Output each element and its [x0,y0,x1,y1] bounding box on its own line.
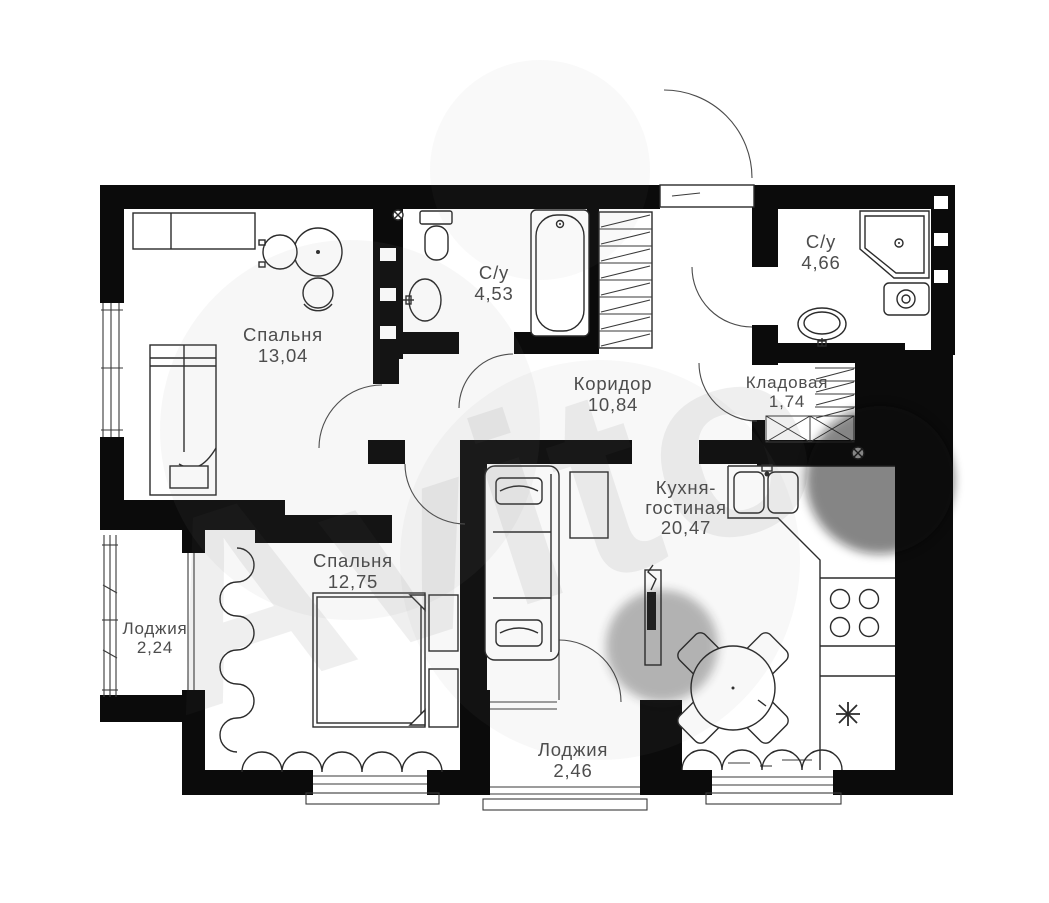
curtain-wave [682,750,842,770]
entrance-door-arc [664,90,752,178]
room-label-loggia1: Лоджия [122,619,187,638]
desk [133,213,255,249]
room-label-storage: Кладовая [746,373,829,392]
wall [752,209,778,267]
sink [798,308,846,346]
wall [752,185,955,209]
stove [820,578,895,646]
room-label-bathroom1: С/у [479,262,509,283]
kitchen-bottom-window [706,760,841,804]
room-area-bedroom2: 12,75 [328,571,378,592]
floorplan-page: Avito Спальня 13,04 С/у 4,53 С/у 4,66 Ко… [0,0,1049,903]
room-label-loggia2: Лоджия [538,739,608,760]
fridge-symbol [820,676,895,726]
room-area-kitchen: 20,47 [661,517,711,538]
entrance-door [660,90,754,207]
floorplan-drawing: Avito Спальня 13,04 С/у 4,53 С/у 4,66 Ко… [0,0,1049,903]
valve-icon [393,210,403,220]
shaft-notch [934,270,948,283]
room-label-corridor: Коридор [574,373,653,394]
room-area-corridor: 10,84 [588,394,638,415]
room-area-loggia1: 2,24 [137,638,173,657]
room-area-storage: 1,74 [769,392,805,411]
wall [833,770,953,795]
bedroom2-bottom-window [306,776,439,804]
room-area-bedroom1: 13,04 [258,345,308,366]
room-label-bathroom2: С/у [806,231,836,252]
curtain-wave [242,752,442,772]
room-label-bedroom2: Спальня [313,550,393,571]
room-label-bedroom1: Спальня [243,324,323,345]
wall [100,185,124,303]
bedroom1-left-window [101,303,123,437]
washing-machine [884,283,929,315]
room-label-kitchen-2: гостиная [645,497,727,518]
wall [195,770,313,795]
room-area-loggia2: 2,46 [553,760,592,781]
shaft-notch [934,233,948,246]
room-label-kitchen-1: Кухня- [656,477,716,498]
shower-cabin [860,211,929,278]
room-area-bathroom1: 4,53 [474,283,513,304]
shaft-notch [934,196,948,209]
watermark-dot [430,60,650,280]
room-area-bathroom2: 4,66 [801,252,840,273]
wall [427,770,460,795]
